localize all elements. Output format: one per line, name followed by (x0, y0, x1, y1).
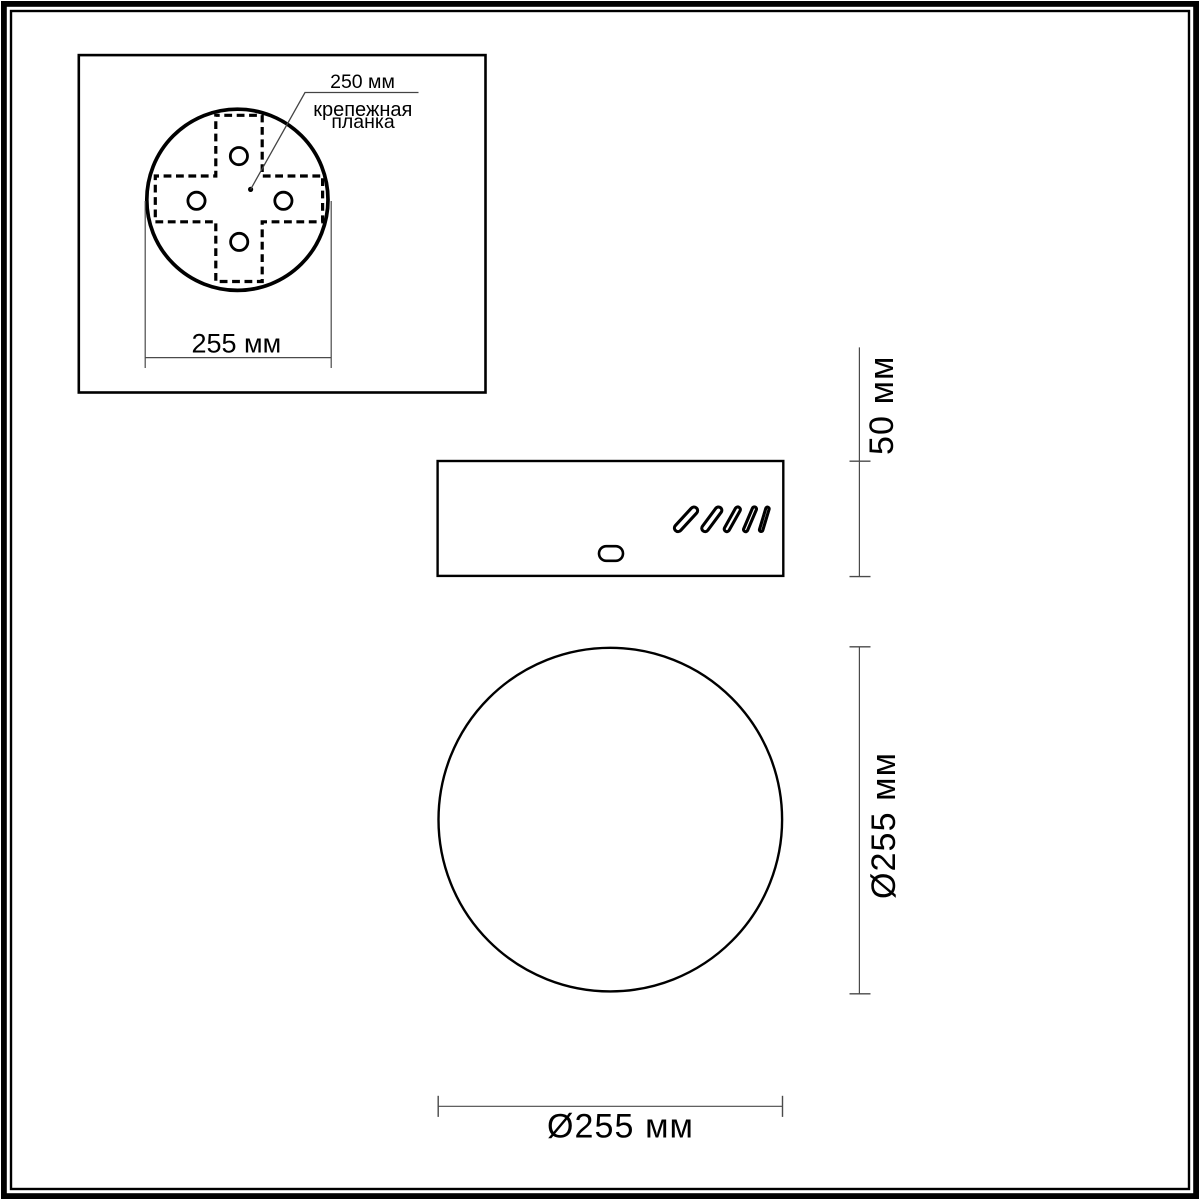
svg-text:50 мм: 50 мм (863, 355, 901, 455)
svg-text:Ø255 мм: Ø255 мм (547, 1108, 694, 1146)
svg-text:Ø255 мм: Ø255 мм (865, 752, 903, 899)
svg-text:планка: планка (331, 111, 395, 133)
svg-text:255 мм: 255 мм (191, 329, 281, 359)
svg-text:250 мм: 250 мм (330, 71, 395, 93)
